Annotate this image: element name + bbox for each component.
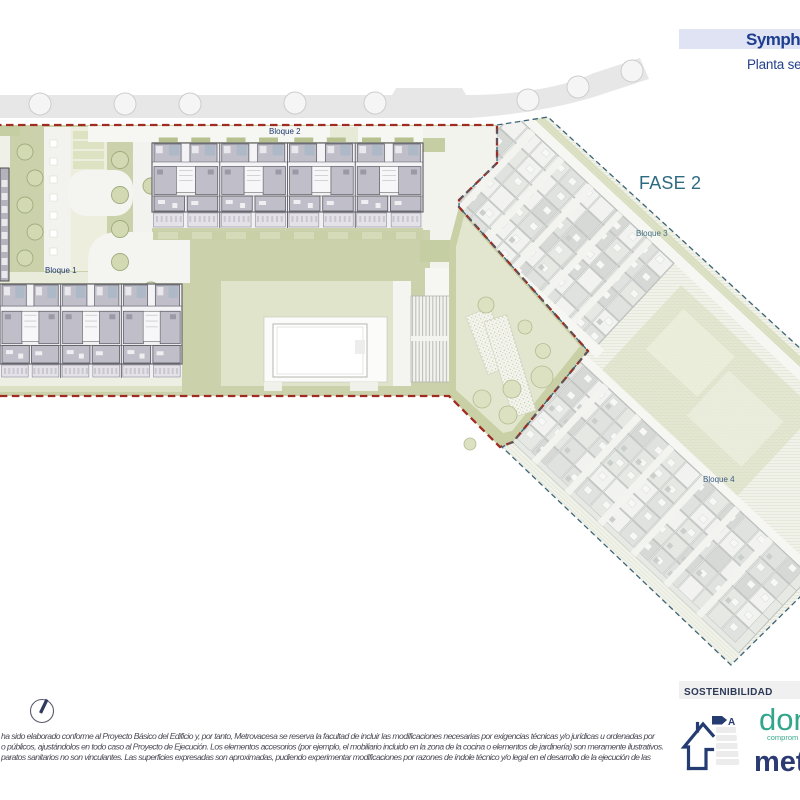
svg-text:Symphony: Symphony bbox=[746, 30, 800, 49]
svg-text:met: met bbox=[754, 746, 800, 778]
svg-text:Planta segunda: Planta segunda bbox=[747, 57, 800, 72]
svg-text:A: A bbox=[728, 717, 735, 728]
svg-text:Bloque 3: Bloque 3 bbox=[636, 229, 668, 238]
svg-text:SOSTENIBILIDAD: SOSTENIBILIDAD bbox=[684, 687, 773, 698]
svg-text:comprom: comprom bbox=[767, 733, 798, 742]
svg-text:Bloque 2: Bloque 2 bbox=[269, 127, 301, 136]
svg-text:Bloque 4: Bloque 4 bbox=[703, 475, 735, 484]
svg-text:dom: dom bbox=[759, 702, 800, 737]
svg-text:FASE 2: FASE 2 bbox=[639, 173, 701, 193]
svg-text:o públicos, ajustándolos en to: o públicos, ajustándolos en todo caso al… bbox=[1, 742, 664, 752]
svg-text:paratos sanitarios no son vinc: paratos sanitarios no son vinculantes. L… bbox=[0, 752, 652, 762]
svg-text:ha sido elaborado conforme al: ha sido elaborado conforme al Proyecto B… bbox=[1, 731, 656, 741]
svg-text:Bloque 1: Bloque 1 bbox=[45, 266, 77, 275]
